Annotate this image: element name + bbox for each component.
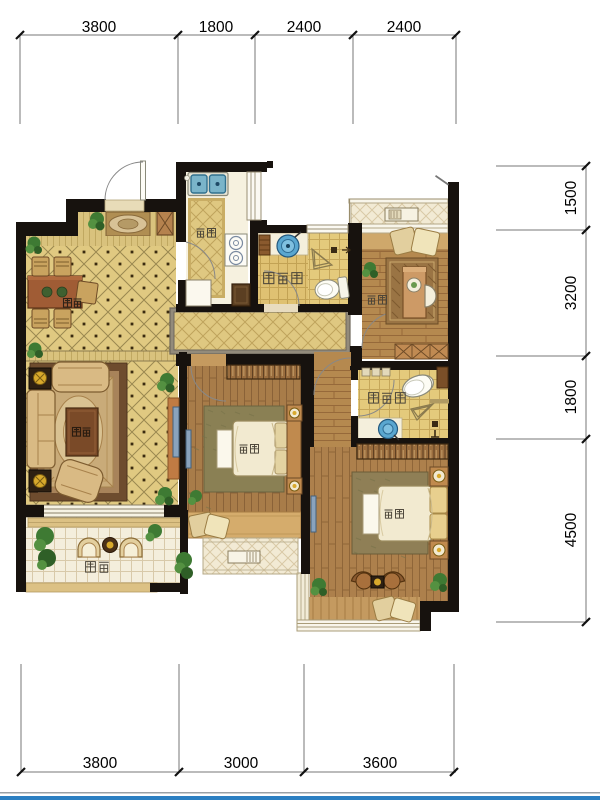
svg-text:4500: 4500: [563, 512, 580, 547]
svg-text:3200: 3200: [563, 275, 580, 310]
svg-text:1800: 1800: [199, 19, 234, 36]
svg-text:3800: 3800: [83, 755, 118, 772]
svg-text:1500: 1500: [563, 180, 580, 215]
svg-text:3800: 3800: [82, 19, 117, 36]
svg-text:2400: 2400: [287, 19, 322, 36]
svg-text:2400: 2400: [387, 19, 422, 36]
svg-text:1800: 1800: [563, 379, 580, 414]
svg-text:3600: 3600: [363, 755, 398, 772]
svg-text:3000: 3000: [224, 755, 259, 772]
